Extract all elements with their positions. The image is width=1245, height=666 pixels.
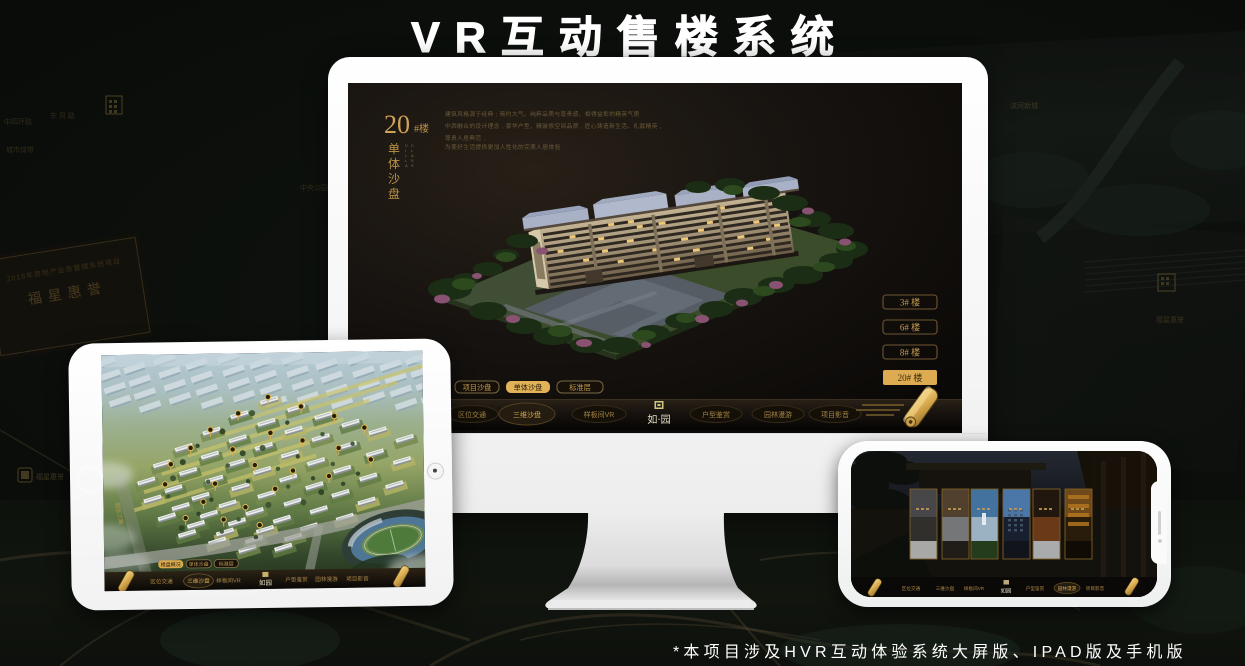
svg-text:三维沙盘: 三维沙盘	[936, 585, 955, 592]
svg-text:单体沙盘: 单体沙盘	[189, 561, 209, 568]
svg-text:如园: 如园	[259, 578, 272, 587]
svg-text:中央公园: 中央公园	[300, 183, 328, 192]
svg-text:盘: 盘	[388, 186, 400, 201]
svg-text:体: 体	[388, 157, 400, 171]
svg-text:单体沙盘: 单体沙盘	[514, 383, 543, 392]
svg-text:A: A	[405, 163, 408, 168]
svg-text:三维沙盘: 三维沙盘	[513, 410, 541, 419]
svg-text:区位交通: 区位交通	[458, 410, 486, 419]
svg-text:园林漫游: 园林漫游	[764, 410, 792, 419]
svg-text:中西融合的设计理念 , 豪华户型、精装修空间品质 , 匠心铸: 中西融合的设计理念 , 豪华户型、精装修空间品质 , 匠心铸造新生活、礼献精英 …	[445, 122, 662, 130]
svg-text:园林漫游: 园林漫游	[1058, 585, 1077, 592]
svg-text:如园: 如园	[1001, 587, 1011, 595]
svg-text:8# 楼: 8# 楼	[900, 347, 920, 358]
svg-text:滨河新城: 滨河新城	[1010, 101, 1038, 110]
svg-text:项目影音: 项目影音	[1086, 585, 1105, 592]
svg-text:20# 楼: 20# 楼	[898, 372, 923, 383]
svg-text:6# 楼: 6# 楼	[900, 322, 920, 333]
svg-text:#楼: #楼	[414, 122, 429, 135]
svg-text:20: 20	[384, 110, 410, 139]
svg-text:如·园: 如·园	[647, 413, 670, 426]
svg-text:户型鉴赏: 户型鉴赏	[1026, 585, 1045, 592]
svg-text:项目沙盘: 项目沙盘	[463, 383, 492, 392]
svg-text:S: S	[411, 163, 414, 168]
svg-text:为美好生活提供更加人性化的完美人居体验: 为美好生活提供更加人性化的完美人居体验	[445, 143, 561, 151]
svg-text:样板间VR: 样板间VR	[964, 585, 985, 592]
svg-text:3# 楼: 3# 楼	[900, 297, 920, 308]
svg-text:东 风 路: 东 风 路	[50, 111, 75, 120]
svg-text:城市绿带: 城市绿带	[6, 145, 34, 154]
svg-text:福星惠誉: 福星惠誉	[36, 472, 64, 481]
svg-text:标准层: 标准层	[219, 560, 234, 567]
svg-text:样板间VR: 样板间VR	[584, 410, 615, 419]
svg-text:户型鉴赏: 户型鉴赏	[702, 410, 730, 419]
svg-text:建筑风格源于经典 ; 简约大气、纯粹品质与尊贵感、相得益彰的: 建筑风格源于经典 ; 简约大气、纯粹品质与尊贵感、相得益彰的精英气质	[445, 110, 640, 118]
svg-text:标准层: 标准层	[569, 383, 591, 392]
svg-text:沙: 沙	[388, 172, 400, 186]
svg-text:中四环路: 中四环路	[4, 117, 32, 126]
svg-text:尊贵人居典范 ,: 尊贵人居典范 ,	[445, 134, 486, 142]
svg-text:区位交通: 区位交通	[902, 585, 921, 592]
svg-text:福星惠誉: 福星惠誉	[1156, 315, 1184, 324]
svg-text:单: 单	[388, 142, 400, 156]
svg-text:项目影音: 项目影音	[821, 410, 849, 419]
svg-text:楼盘概况: 楼盘概况	[161, 561, 181, 568]
